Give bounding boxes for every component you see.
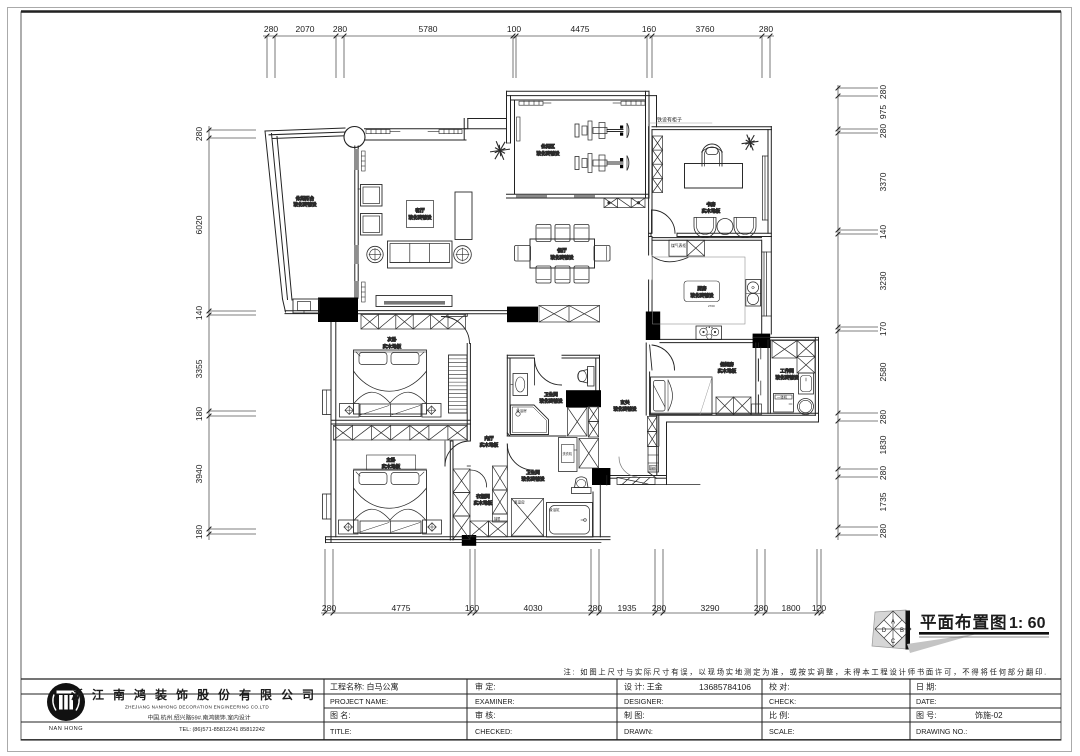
svg-text:内厅: 内厅 bbox=[484, 435, 494, 442]
svg-text:制 图:: 制 图: bbox=[624, 710, 644, 720]
svg-text:2070: 2070 bbox=[296, 24, 315, 34]
svg-text:CHECKED:: CHECKED: bbox=[475, 727, 512, 736]
svg-text:13685784106: 13685784106 bbox=[699, 682, 751, 692]
svg-text:975: 975 bbox=[878, 105, 888, 119]
svg-text:180: 180 bbox=[194, 525, 204, 539]
svg-text:D: D bbox=[882, 628, 887, 634]
svg-text:3940: 3940 bbox=[194, 464, 204, 483]
svg-text:主卧: 主卧 bbox=[386, 457, 396, 464]
svg-text:图 名:: 图 名: bbox=[330, 710, 350, 720]
svg-text:厨房: 厨房 bbox=[697, 285, 707, 292]
svg-text:保姆房: 保姆房 bbox=[720, 361, 734, 368]
svg-text:1935: 1935 bbox=[618, 603, 637, 613]
svg-text:日 期:: 日 期: bbox=[916, 683, 936, 692]
svg-text:160: 160 bbox=[642, 24, 656, 34]
svg-text:A: A bbox=[891, 620, 895, 626]
svg-text:280: 280 bbox=[878, 466, 888, 480]
svg-text:2700: 2700 bbox=[708, 304, 715, 308]
svg-text:DRAWING NO.:: DRAWING NO.: bbox=[916, 727, 967, 736]
svg-text:客厅: 客厅 bbox=[415, 207, 425, 214]
svg-text:玻化砖铺设: 玻化砖铺设 bbox=[540, 398, 563, 405]
svg-text:3370: 3370 bbox=[878, 172, 888, 191]
svg-text:鞋柜: 鞋柜 bbox=[650, 465, 657, 470]
svg-text:抽屉: 抽屉 bbox=[494, 516, 500, 521]
svg-text:玄关: 玄关 bbox=[620, 399, 630, 406]
svg-text:2580: 2580 bbox=[878, 362, 888, 381]
svg-text:DRAWN:: DRAWN: bbox=[624, 727, 653, 736]
svg-text:280: 280 bbox=[264, 24, 278, 34]
svg-text:中国.杭州.绍兴路59#.南鸿装饰.室内设计: 中国.杭州.绍兴路59#.南鸿装饰.室内设计 bbox=[147, 714, 250, 722]
svg-text:玻化砖铺设: 玻化砖铺设 bbox=[614, 406, 637, 413]
svg-text:衣帽间: 衣帽间 bbox=[476, 493, 490, 500]
svg-text:玻化砖铺设: 玻化砖铺设 bbox=[294, 201, 317, 208]
svg-text:5780: 5780 bbox=[419, 24, 438, 34]
svg-text:NAN HONG: NAN HONG bbox=[49, 726, 83, 732]
svg-text:140: 140 bbox=[194, 306, 204, 320]
svg-text:ZHEJIANG NANHONG DECORATION: ZHEJIANG NANHONG DECORATION ENGINEERING … bbox=[125, 705, 269, 710]
svg-text:玻化砖铺设: 玻化砖铺设 bbox=[537, 150, 560, 157]
svg-text:B: B bbox=[900, 628, 904, 634]
svg-text:玻化砖铺设: 玻化砖铺设 bbox=[551, 254, 574, 261]
svg-text:一体机: 一体机 bbox=[777, 395, 788, 400]
svg-text:工程名称: 白马公寓: 工程名称: 白马公寓 bbox=[330, 682, 398, 692]
svg-text:书房: 书房 bbox=[706, 201, 716, 208]
svg-text:280: 280 bbox=[194, 127, 204, 141]
svg-text:淩浴缸: 淩浴缸 bbox=[549, 507, 560, 512]
svg-text:SCALE:: SCALE: bbox=[769, 727, 795, 736]
svg-text:实木地板: 实木地板 bbox=[702, 208, 721, 215]
svg-text:PROJECT NAME:: PROJECT NAME: bbox=[330, 697, 388, 706]
svg-text:饰施-02: 饰施-02 bbox=[975, 710, 1003, 720]
svg-text:280: 280 bbox=[759, 24, 773, 34]
svg-text:EXAMINER:: EXAMINER: bbox=[475, 697, 515, 706]
svg-text:玻化砖铺设: 玻化砖铺设 bbox=[776, 374, 799, 381]
svg-text:实木地板: 实木地板 bbox=[474, 500, 493, 507]
svg-text:1830: 1830 bbox=[878, 435, 888, 454]
svg-text:4030: 4030 bbox=[524, 603, 543, 613]
svg-text:工作间: 工作间 bbox=[780, 368, 794, 375]
svg-text:280: 280 bbox=[878, 524, 888, 538]
svg-text:1800: 1800 bbox=[782, 603, 801, 613]
svg-text:140: 140 bbox=[878, 225, 888, 239]
svg-text:比 例:: 比 例: bbox=[769, 710, 789, 720]
svg-text:卫生间: 卫生间 bbox=[526, 469, 540, 476]
svg-text:休闲阳台: 休闲阳台 bbox=[296, 195, 315, 202]
svg-text:玻化砖铺设: 玻化砖铺设 bbox=[409, 214, 432, 221]
svg-text:3230: 3230 bbox=[878, 271, 888, 290]
svg-text:280: 280 bbox=[878, 124, 888, 138]
svg-text:图 号:: 图 号: bbox=[916, 711, 936, 720]
svg-text:3760: 3760 bbox=[696, 24, 715, 34]
svg-text:校 对:: 校 对: bbox=[769, 682, 789, 692]
svg-text:1735: 1735 bbox=[878, 492, 888, 511]
svg-text:280: 280 bbox=[878, 85, 888, 99]
svg-text:TEL: (86)571-85812241 8581: TEL: (86)571-85812241 85812242 bbox=[179, 727, 265, 733]
svg-text:100: 100 bbox=[507, 24, 521, 34]
svg-text:蒸室房: 蒸室房 bbox=[514, 500, 525, 505]
svg-text:餐厅: 餐厅 bbox=[557, 247, 567, 254]
svg-text:DESIGNER:: DESIGNER: bbox=[624, 697, 664, 706]
svg-text:180: 180 bbox=[194, 407, 204, 421]
svg-text:4475: 4475 bbox=[571, 24, 590, 34]
svg-text:实木地板: 实木地板 bbox=[383, 343, 402, 350]
svg-text:设 计: 王金: 设 计: 王金 bbox=[624, 682, 663, 692]
svg-text:280: 280 bbox=[333, 24, 347, 34]
svg-text:煤气表柜: 煤气表柜 bbox=[671, 243, 686, 248]
svg-text:次卧: 次卧 bbox=[387, 336, 397, 343]
svg-text:卫生间: 卫生间 bbox=[544, 391, 558, 398]
svg-text:170: 170 bbox=[878, 322, 888, 336]
svg-text:审 定:: 审 定: bbox=[475, 682, 495, 692]
svg-text:1: 60: 1: 60 bbox=[1009, 615, 1046, 632]
svg-text:淩浴房: 淩浴房 bbox=[516, 408, 527, 413]
svg-text:6020: 6020 bbox=[194, 215, 204, 234]
svg-text:审 核:: 审 核: bbox=[475, 710, 495, 720]
svg-text:280: 280 bbox=[878, 410, 888, 424]
svg-text:平面布置图: 平面布置图 bbox=[920, 612, 1008, 632]
svg-text:C: C bbox=[891, 639, 896, 645]
svg-text:DATE:: DATE: bbox=[916, 697, 937, 706]
svg-text:4775: 4775 bbox=[392, 603, 411, 613]
svg-text:实木地板: 实木地板 bbox=[718, 368, 737, 375]
svg-text:TITLE:: TITLE: bbox=[330, 727, 352, 736]
svg-text:玻化砖铺设: 玻化砖铺设 bbox=[522, 476, 545, 483]
svg-text:玻化砖铺设: 玻化砖铺设 bbox=[691, 292, 714, 299]
svg-text:浙江南鸿装饰股份有限公司: 浙江南鸿装饰股份有限公司 bbox=[71, 687, 323, 702]
svg-text:实木地板: 实木地板 bbox=[480, 442, 499, 449]
svg-text:CHECK:: CHECK: bbox=[769, 697, 796, 706]
svg-text:3355: 3355 bbox=[194, 359, 204, 378]
svg-text:休闲区: 休闲区 bbox=[541, 143, 555, 150]
svg-text:3290: 3290 bbox=[701, 603, 720, 613]
svg-text:洗衣机: 洗衣机 bbox=[563, 451, 573, 456]
svg-text:注: 如图上尺寸与实际尺寸有误，以现场实地测定为准，或按实调: 注: 如图上尺寸与实际尺寸有误，以现场实地测定为准，或按实调整，未得本工程设计师… bbox=[563, 668, 1048, 677]
svg-text:铁设有柜子: 铁设有柜子 bbox=[657, 117, 682, 124]
